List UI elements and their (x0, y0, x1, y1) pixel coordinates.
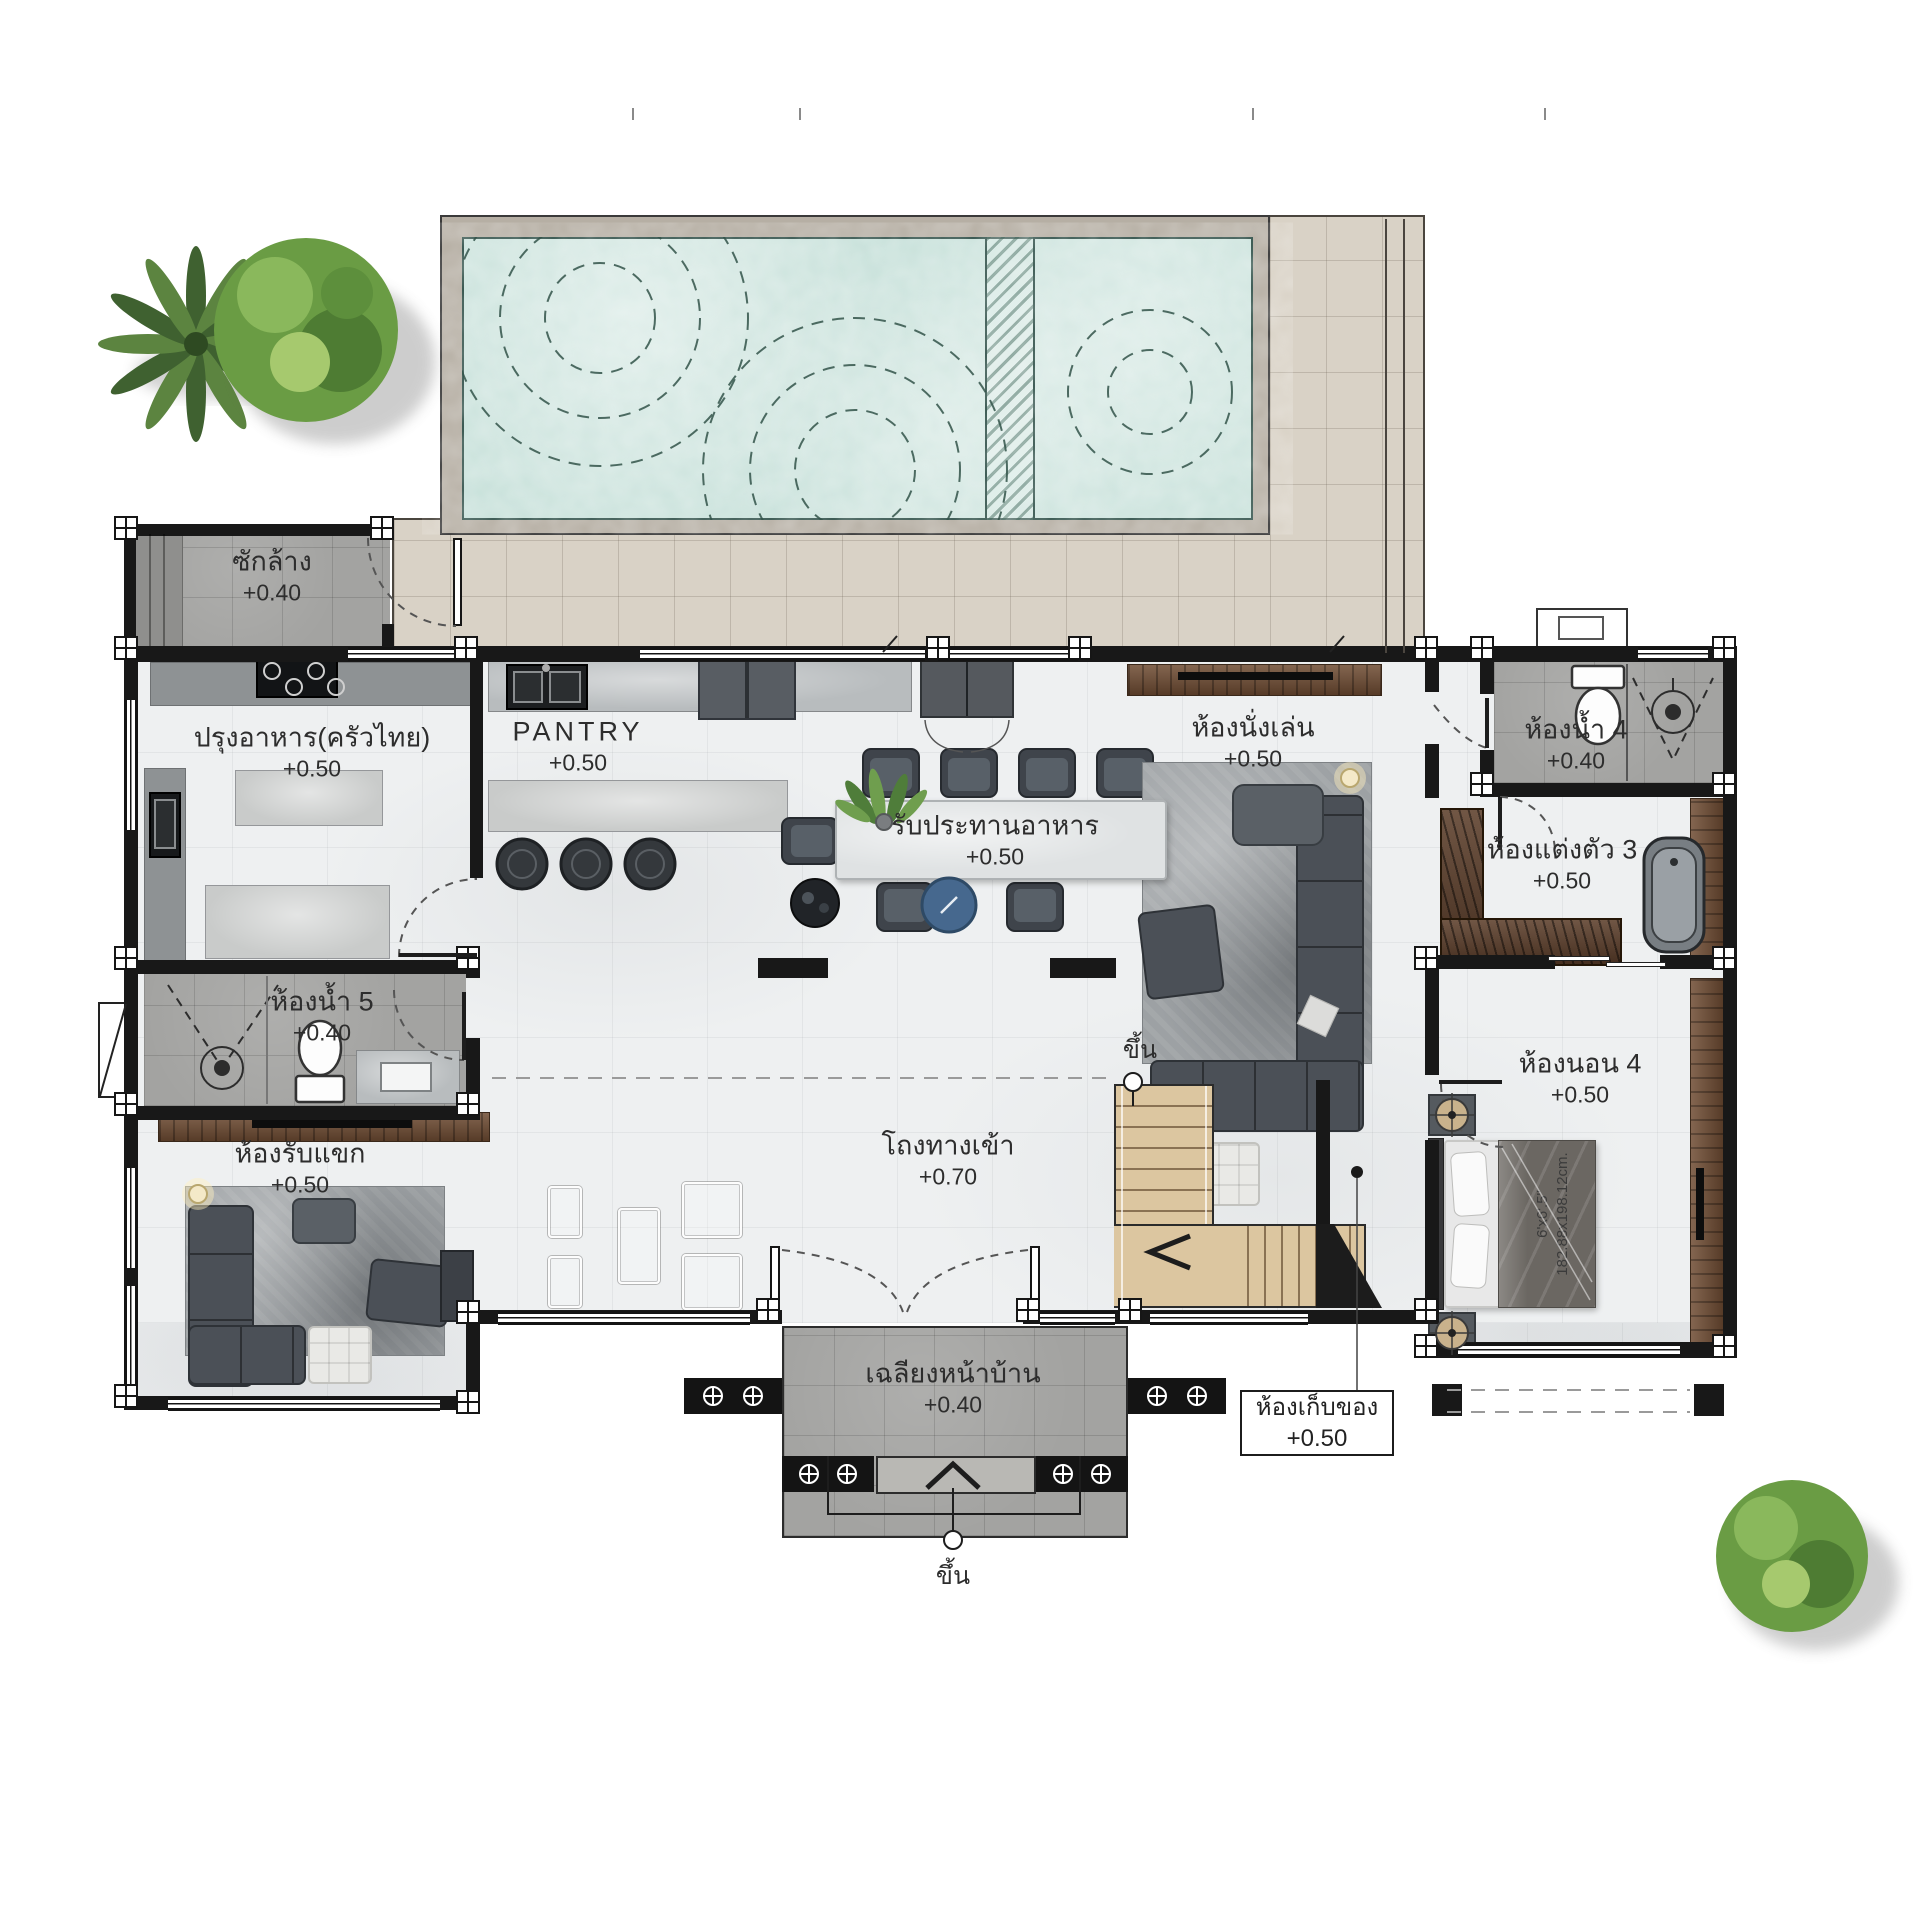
wall-stub-hall-left (758, 958, 828, 978)
label-pantry: PANTRY +0.50 (512, 716, 643, 777)
label-entry-hall: โถงทางเข้า +0.70 (881, 1130, 1014, 1191)
room-elevation: +0.50 (891, 842, 1099, 870)
window-under-stairs (1150, 1311, 1308, 1325)
pier-mark-icon (799, 1464, 819, 1484)
refrigerator (920, 660, 1014, 718)
window (1458, 1343, 1680, 1357)
pool-walkway-hatch (985, 237, 1035, 520)
column-marker (456, 1300, 480, 1324)
window (1040, 1311, 1115, 1325)
hall-chair-outline (682, 1254, 742, 1310)
porch-pier (684, 1378, 782, 1414)
column-marker (456, 946, 480, 970)
window (348, 647, 460, 661)
label-entry-up: ขึ้น (936, 1556, 970, 1596)
room-name: ห้องรับแขก (234, 1138, 365, 1171)
bed-size-line2: 182.88x198.12cm. (1554, 1152, 1571, 1275)
bedroom-tv (1696, 1168, 1704, 1240)
wall-kitchen-pantry-divider (470, 662, 483, 878)
room-name: ห้องน้ำ 4 (1524, 714, 1627, 747)
room-elevation: +0.50 (1487, 866, 1638, 894)
room-elevation: +0.50 (1519, 1080, 1642, 1108)
column-marker (1470, 636, 1494, 660)
room-elevation: +0.50 (194, 754, 431, 782)
room-elevation: +0.50 (234, 1170, 365, 1198)
floor-plan: 6'x6'.5" 182.88x198.12cm. (0, 0, 1920, 1920)
bed-pillow (1450, 1223, 1490, 1289)
column-marker (1414, 636, 1438, 660)
pool-deck-right (1270, 215, 1425, 655)
column-marker (370, 516, 394, 540)
pool-water (462, 237, 1253, 520)
pier-mark-icon (1091, 1464, 1111, 1484)
room-name: รับประทานอาหาร (891, 810, 1099, 843)
porch-pier (1128, 1378, 1226, 1414)
dining-chair (1006, 882, 1064, 932)
living-coffee-table (1232, 784, 1324, 846)
kitchen-sink (149, 792, 181, 858)
hall-table-outline (548, 1256, 582, 1308)
column-marker (456, 1390, 480, 1414)
wall-stair-right (1316, 1080, 1330, 1224)
laundry-door-leaf (453, 538, 462, 626)
column-marker (1068, 636, 1092, 660)
pocket-door-leaf (1548, 956, 1610, 961)
label-laundry: ซักล้าง +0.40 (232, 546, 312, 607)
bed-pillow (1450, 1151, 1490, 1217)
eave-block (1432, 1384, 1462, 1416)
room-name: โถงทางเข้า (881, 1130, 1014, 1163)
wall-bath5-bottom (124, 1106, 480, 1120)
room-name: ห้องนอน 4 (1519, 1048, 1642, 1081)
window (168, 1397, 440, 1411)
bathroom5-basin (380, 1062, 432, 1092)
label-dining: รับประทานอาหาร +0.50 (891, 810, 1099, 871)
cooktop (256, 660, 338, 698)
pier-mark-icon (703, 1386, 723, 1406)
hall-chair-outline (682, 1182, 742, 1238)
column-marker (456, 1092, 480, 1116)
column-marker (114, 1384, 138, 1408)
nightstand (1428, 1094, 1476, 1136)
dining-chair (1018, 748, 1076, 798)
eave-block (1694, 1384, 1724, 1416)
wall-laundry-top (124, 524, 394, 536)
tree-palm-top-left (98, 246, 325, 442)
hall-console-outline (618, 1208, 660, 1284)
room-elevation: +0.40 (270, 1018, 373, 1046)
kitchen-island-lower (205, 885, 390, 959)
wall-living-right-b (1425, 744, 1439, 798)
column-marker (1414, 1298, 1438, 1322)
column-marker (756, 1298, 780, 1322)
column-marker (114, 1092, 138, 1116)
room-name: ห้องเก็บของ (1256, 1392, 1378, 1423)
living-armchair (1137, 904, 1225, 1001)
wall-right (1723, 646, 1737, 1358)
room-elevation: +0.70 (881, 1162, 1014, 1190)
tree-canopy-bottom-right (1716, 1480, 1899, 1650)
guest-sofa-chaise (188, 1325, 306, 1385)
survey-ticks (633, 108, 1545, 120)
window (124, 1168, 138, 1268)
tree-canopy-top-left (214, 238, 435, 444)
room-elevation: +0.40 (865, 1390, 1040, 1418)
column-marker (114, 516, 138, 540)
column-marker (1712, 636, 1736, 660)
label-storage: ห้องเก็บของ +0.50 (1240, 1390, 1394, 1456)
bed-size-line1: 6'x6'.5" (1534, 1190, 1551, 1238)
dining-chair (862, 748, 920, 798)
hall-table-outline (548, 1186, 582, 1238)
room-elevation: +0.40 (1524, 746, 1627, 774)
column-marker (1414, 1334, 1438, 1358)
laundry-shelf-band (136, 534, 183, 646)
pier-mark-icon (743, 1386, 763, 1406)
guest-ottoman (308, 1326, 372, 1384)
room-elevation: +0.50 (512, 748, 643, 776)
dining-chair (786, 812, 834, 870)
pier-mark-icon (1147, 1386, 1167, 1406)
room-name: PANTRY (512, 716, 643, 749)
column-marker (1712, 946, 1736, 970)
stairs-lower-flight (1232, 1226, 1364, 1306)
room-name: เฉลียงหน้าบ้าน (865, 1358, 1040, 1391)
column-marker (114, 636, 138, 660)
wall-bedroom-left-lower (1425, 1140, 1439, 1324)
dining-chair (876, 882, 934, 932)
porch-pier (782, 1456, 874, 1492)
room-elevation: +0.40 (232, 578, 312, 606)
pantry-island (488, 780, 788, 832)
living-tv-console (1127, 664, 1382, 696)
porch-pier (1036, 1456, 1128, 1492)
column-marker (114, 946, 138, 970)
window (498, 1311, 750, 1325)
column-marker (1712, 1334, 1736, 1358)
guest-tv (252, 1120, 412, 1128)
room-elevation: +0.50 (1191, 744, 1314, 772)
label-porch: เฉลียงหน้าบ้าน +0.40 (865, 1358, 1040, 1419)
room-elevation: +0.50 (1287, 1423, 1348, 1454)
label-dressing3: ห้องแต่งตัว 3 +0.50 (1487, 834, 1638, 895)
dressing-closet-right (1690, 798, 1724, 958)
label-thai-kitchen: ปรุงอาหาร(ครัวไทย) +0.50 (194, 722, 431, 783)
wall-bath5-top (124, 960, 480, 974)
window (124, 1286, 138, 1384)
label-guest: ห้องรับแขก +0.50 (234, 1138, 365, 1199)
wall-laundry-left (124, 524, 136, 648)
column-marker (1118, 1298, 1142, 1322)
column-marker (1712, 772, 1736, 796)
room-name: ซักล้าง (232, 546, 312, 579)
wall-bath4-left-a (1480, 662, 1494, 694)
wall-stub-hall-right (1050, 958, 1116, 978)
room-name: ปรุงอาหาร(ครัวไทย) (194, 722, 431, 755)
label-bathroom4: ห้องน้ำ 4 +0.40 (1524, 714, 1627, 775)
pier-mark-icon (1053, 1464, 1073, 1484)
room-name: ห้องแต่งตัว 3 (1487, 834, 1638, 867)
label-bathroom5: ห้องน้ำ 5 +0.40 (270, 986, 373, 1047)
dining-chair (940, 748, 998, 798)
label-living: ห้องนั่งเล่น +0.50 (1191, 712, 1314, 773)
living-tv (1178, 672, 1333, 680)
pocket-door-leaf (1606, 962, 1666, 967)
window-pool-sliding-door (640, 647, 925, 661)
window (938, 647, 1078, 661)
guest-coffee-table (292, 1198, 356, 1244)
wall-bath4-dressing-divider (1480, 783, 1737, 797)
pantry-sink (506, 664, 588, 710)
column-marker (1414, 946, 1438, 970)
wall-bedroom-left-upper (1425, 968, 1439, 1075)
wall-living-right-a (1425, 662, 1439, 692)
room-name: ห้องนั่งเล่น (1191, 712, 1314, 745)
window (1638, 647, 1708, 661)
window (124, 700, 138, 830)
room-name: ห้องน้ำ 5 (270, 986, 373, 1019)
porch-step (876, 1456, 1036, 1494)
bed-size-label: 6'x6'.5" 182.88x198.12cm. (1533, 1129, 1577, 1299)
label-bedroom4: ห้องนอน 4 +0.50 (1519, 1048, 1642, 1109)
pier-mark-icon (1187, 1386, 1207, 1406)
column-marker (926, 636, 950, 660)
pier-mark-icon (837, 1464, 857, 1484)
bathroom4-basin (1558, 616, 1604, 640)
pantry-hood (698, 660, 796, 720)
column-marker (454, 636, 478, 660)
wall-dressing-bottom-a (1425, 955, 1555, 969)
column-marker (1016, 1298, 1040, 1322)
label-stairs-up: ขึ้น (1123, 1030, 1157, 1070)
bedroom-wardrobe-right (1690, 978, 1724, 1346)
column-marker (1470, 772, 1494, 796)
